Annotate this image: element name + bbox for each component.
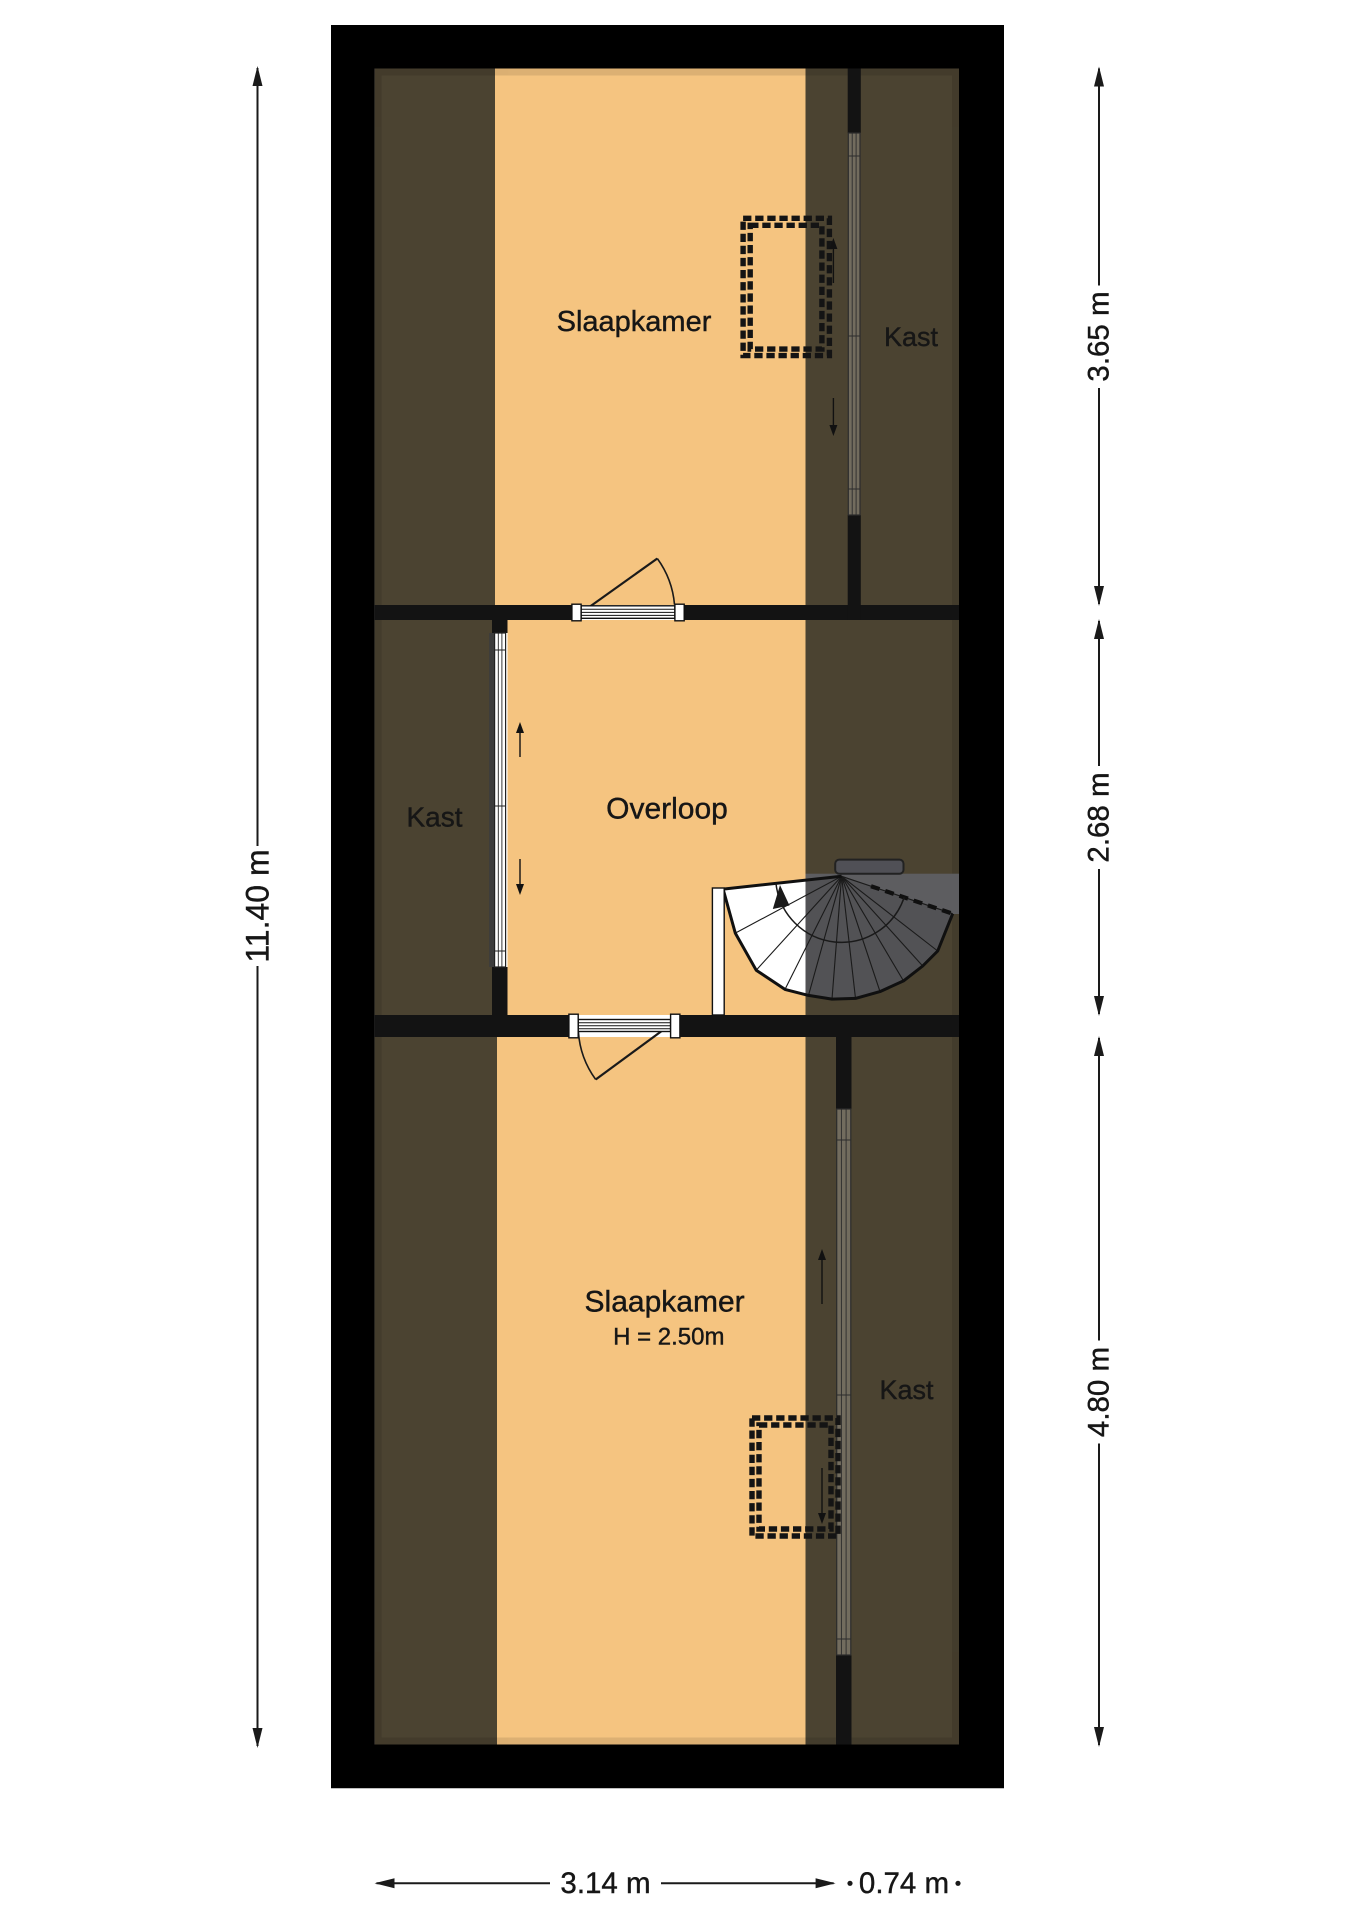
svg-text:H = 2.50m: H = 2.50m: [613, 1324, 724, 1351]
svg-text:Overloop: Overloop: [606, 793, 728, 826]
svg-text:Kast: Kast: [406, 802, 462, 833]
svg-text:3.14 m: 3.14 m: [560, 1867, 650, 1900]
svg-text:11.40 m: 11.40 m: [240, 849, 276, 962]
svg-text:3.65 m: 3.65 m: [1083, 291, 1116, 381]
svg-text:Slaapkamer: Slaapkamer: [557, 306, 712, 338]
svg-text:0.74 m: 0.74 m: [859, 1867, 949, 1900]
svg-text:Kast: Kast: [879, 1375, 934, 1405]
svg-text:Kast: Kast: [884, 322, 939, 352]
svg-text:4.80 m: 4.80 m: [1083, 1347, 1116, 1437]
svg-text:Slaapkamer: Slaapkamer: [585, 1286, 745, 1319]
svg-text:2.68 m: 2.68 m: [1083, 772, 1116, 862]
